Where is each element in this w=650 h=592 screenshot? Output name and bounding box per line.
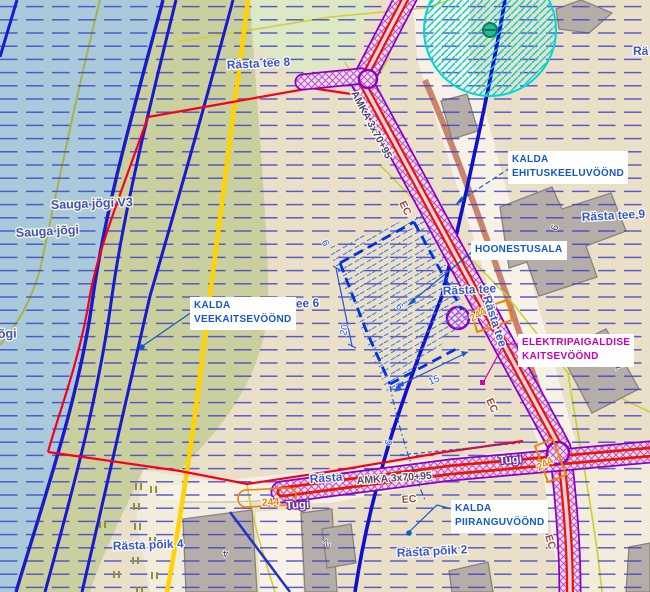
annotation-line: KALDA — [194, 299, 292, 313]
annotation-veekaitsevoond: KALDA VEEKAITSEVÖÖND — [190, 297, 296, 330]
annotation-line: PIIRANGUVÖÖND — [455, 516, 544, 530]
river-label: õgi — [0, 326, 17, 341]
planning-map-view[interactable]: Rästa tee 8 Rästa tee 9 Rästa tee 6 Räst… — [0, 0, 650, 592]
piiranguvoond-hatch-grid — [0, 0, 650, 592]
annotation-line: KALDA — [512, 153, 624, 167]
river-label: Sauga jõgi V3 — [51, 195, 133, 212]
support-label: Tugi — [498, 453, 522, 467]
annotation-line: VEEKAITSEVÖÖND — [194, 313, 292, 327]
annotation-ehituskeeluvoond: KALDA EHITUSKEELUVÖÖND — [508, 151, 628, 184]
pylon-number: 244 — [261, 496, 279, 509]
annotation-piiranguvoond: KALDA PIIRANGUVÖÖND — [451, 500, 548, 533]
annotation-line: KAITSEVÖÖND — [522, 350, 630, 364]
map-canvas: Rästa tee 8 Rästa tee 9 Rästa tee 6 Räst… — [0, 0, 650, 592]
annotation-line: HOONESTUSALA — [475, 243, 563, 257]
ec-label: EC — [401, 493, 417, 506]
annotation-hoonestusala: HOONESTUSALA — [471, 241, 567, 260]
annotation-elektripaigaldise: ELEKTRIPAIGALDISE KAITSEVÖÖND — [518, 334, 634, 367]
annotation-line: KALDA — [455, 502, 544, 516]
street-label: Rästa põik 4 — [113, 537, 184, 553]
street-label: Rästa — [309, 470, 343, 486]
street-label: Rä — [633, 44, 649, 58]
support-label: Tugi — [286, 499, 310, 512]
annotation-line: ELEKTRIPAIGALDISE — [522, 336, 630, 350]
annotation-line: EHITUSKEELUVÖÖND — [512, 167, 624, 181]
